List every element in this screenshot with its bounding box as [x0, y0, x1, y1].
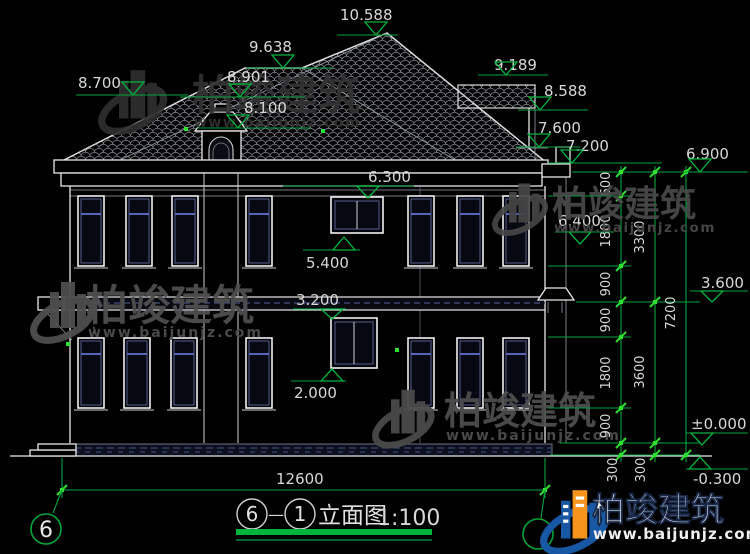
bottom-dimension: 12600 6 — [31, 458, 553, 549]
watermark-mid-right: 柏竣建筑 www.baijunjz.com — [369, 389, 621, 453]
title-underline-thick — [236, 529, 432, 535]
watermark-url: www.baijunjz.com — [446, 428, 621, 444]
elevation-canvas: 柏竣建筑 www.baijunjz.com — [0, 0, 750, 554]
dim-label: 300 — [634, 458, 649, 483]
svg-text:8.100: 8.100 — [244, 99, 287, 117]
level-0000: ±0.000 — [686, 415, 748, 445]
watermark-logo — [490, 183, 551, 240]
svg-text:8.700: 8.700 — [78, 74, 121, 92]
svg-text:2.000: 2.000 — [294, 384, 337, 402]
window — [242, 338, 276, 410]
svg-text:9.189: 9.189 — [494, 56, 537, 74]
right-wing-eave — [542, 164, 570, 177]
watermark-brand: 柏竣建筑 — [552, 184, 696, 225]
level-6900: 6.900 — [678, 145, 748, 172]
window — [167, 338, 201, 410]
window-square — [331, 197, 383, 233]
dim-label: 3600 — [633, 355, 648, 388]
svg-text:10.588: 10.588 — [340, 6, 393, 24]
svg-text:5.400: 5.400 — [306, 254, 349, 272]
windows-upper — [74, 196, 533, 268]
cad-elevation-drawing: 柏竣建筑 www.baijunjz.com — [0, 0, 750, 554]
dim-label: 1800 — [599, 356, 614, 389]
window — [242, 196, 276, 268]
svg-text:3.200: 3.200 — [296, 291, 339, 309]
window — [120, 338, 154, 410]
grid-bubble-left-label: 6 — [39, 518, 53, 543]
window — [74, 338, 108, 410]
watermark-url: www.baijunjz.com — [554, 220, 716, 236]
eave-fascia-lower — [61, 173, 542, 186]
base — [10, 444, 712, 456]
right-ledge — [538, 288, 574, 300]
step-upper — [38, 444, 76, 450]
level-10588: 10.588 — [337, 6, 398, 35]
window — [453, 196, 487, 268]
watermark-brand: 柏竣建筑 — [592, 490, 724, 529]
svg-text:6.900: 6.900 — [686, 145, 729, 163]
drawing-scale: 1:100 — [377, 506, 440, 531]
dim-label: 300 — [606, 458, 621, 483]
title-block: 6 — 1 立面图 1:100 — [236, 499, 440, 540]
window — [404, 196, 438, 268]
window-stair — [331, 318, 377, 368]
svg-text:±0.000: ±0.000 — [691, 415, 747, 433]
dim-label: 900 — [599, 414, 614, 439]
level-9189: 9.189 — [478, 56, 548, 75]
plinth-band — [74, 444, 552, 456]
window — [74, 196, 108, 268]
watermark-url: www.baijunjz.com — [88, 325, 263, 341]
watermark-top-right: 柏竣建筑 www.baijunjz.com — [490, 183, 716, 240]
dim-label: 900 — [599, 308, 614, 333]
right-parapet-tile-band — [458, 85, 535, 108]
window — [168, 196, 202, 268]
total-width-label: 12600 — [276, 470, 324, 488]
svg-text:6.300: 6.300 — [368, 168, 411, 186]
watermark-brand: 柏竣建筑 — [444, 389, 596, 433]
svg-text:8.901: 8.901 — [227, 68, 270, 86]
watermark-bottom-right: 柏竣建筑 www.baijunjz.com — [537, 490, 750, 554]
watermark-mid-left: 柏竣建筑 www.baijunjz.com — [27, 281, 263, 349]
level-3200: 3.200 — [293, 291, 346, 319]
window — [122, 196, 156, 268]
watermark-url: www.baijunjz.com — [194, 115, 361, 131]
watermark-url: www.baijunjz.com — [593, 525, 750, 543]
level-3600: 3.600 — [690, 274, 748, 302]
title-separator: — — [268, 505, 284, 524]
level-2000: 2.000 — [291, 369, 346, 402]
level-5400: 5.400 — [303, 237, 360, 272]
dim-label: 900 — [599, 272, 614, 297]
watermark-brand: 柏竣建筑 — [86, 281, 254, 330]
title-axis-to: 1 — [294, 502, 307, 526]
svg-text:9.638: 9.638 — [249, 38, 292, 56]
svg-text:7.200: 7.200 — [566, 137, 609, 155]
svg-text:3.600: 3.600 — [701, 274, 744, 292]
level-neg0300: -0.300 — [686, 457, 748, 488]
step-lower — [30, 450, 76, 456]
svg-text:-0.300: -0.300 — [693, 470, 741, 488]
dim-label: 7200 — [664, 296, 679, 329]
title-axis-from: 6 — [246, 502, 259, 526]
eave-fascia-upper — [54, 160, 548, 173]
